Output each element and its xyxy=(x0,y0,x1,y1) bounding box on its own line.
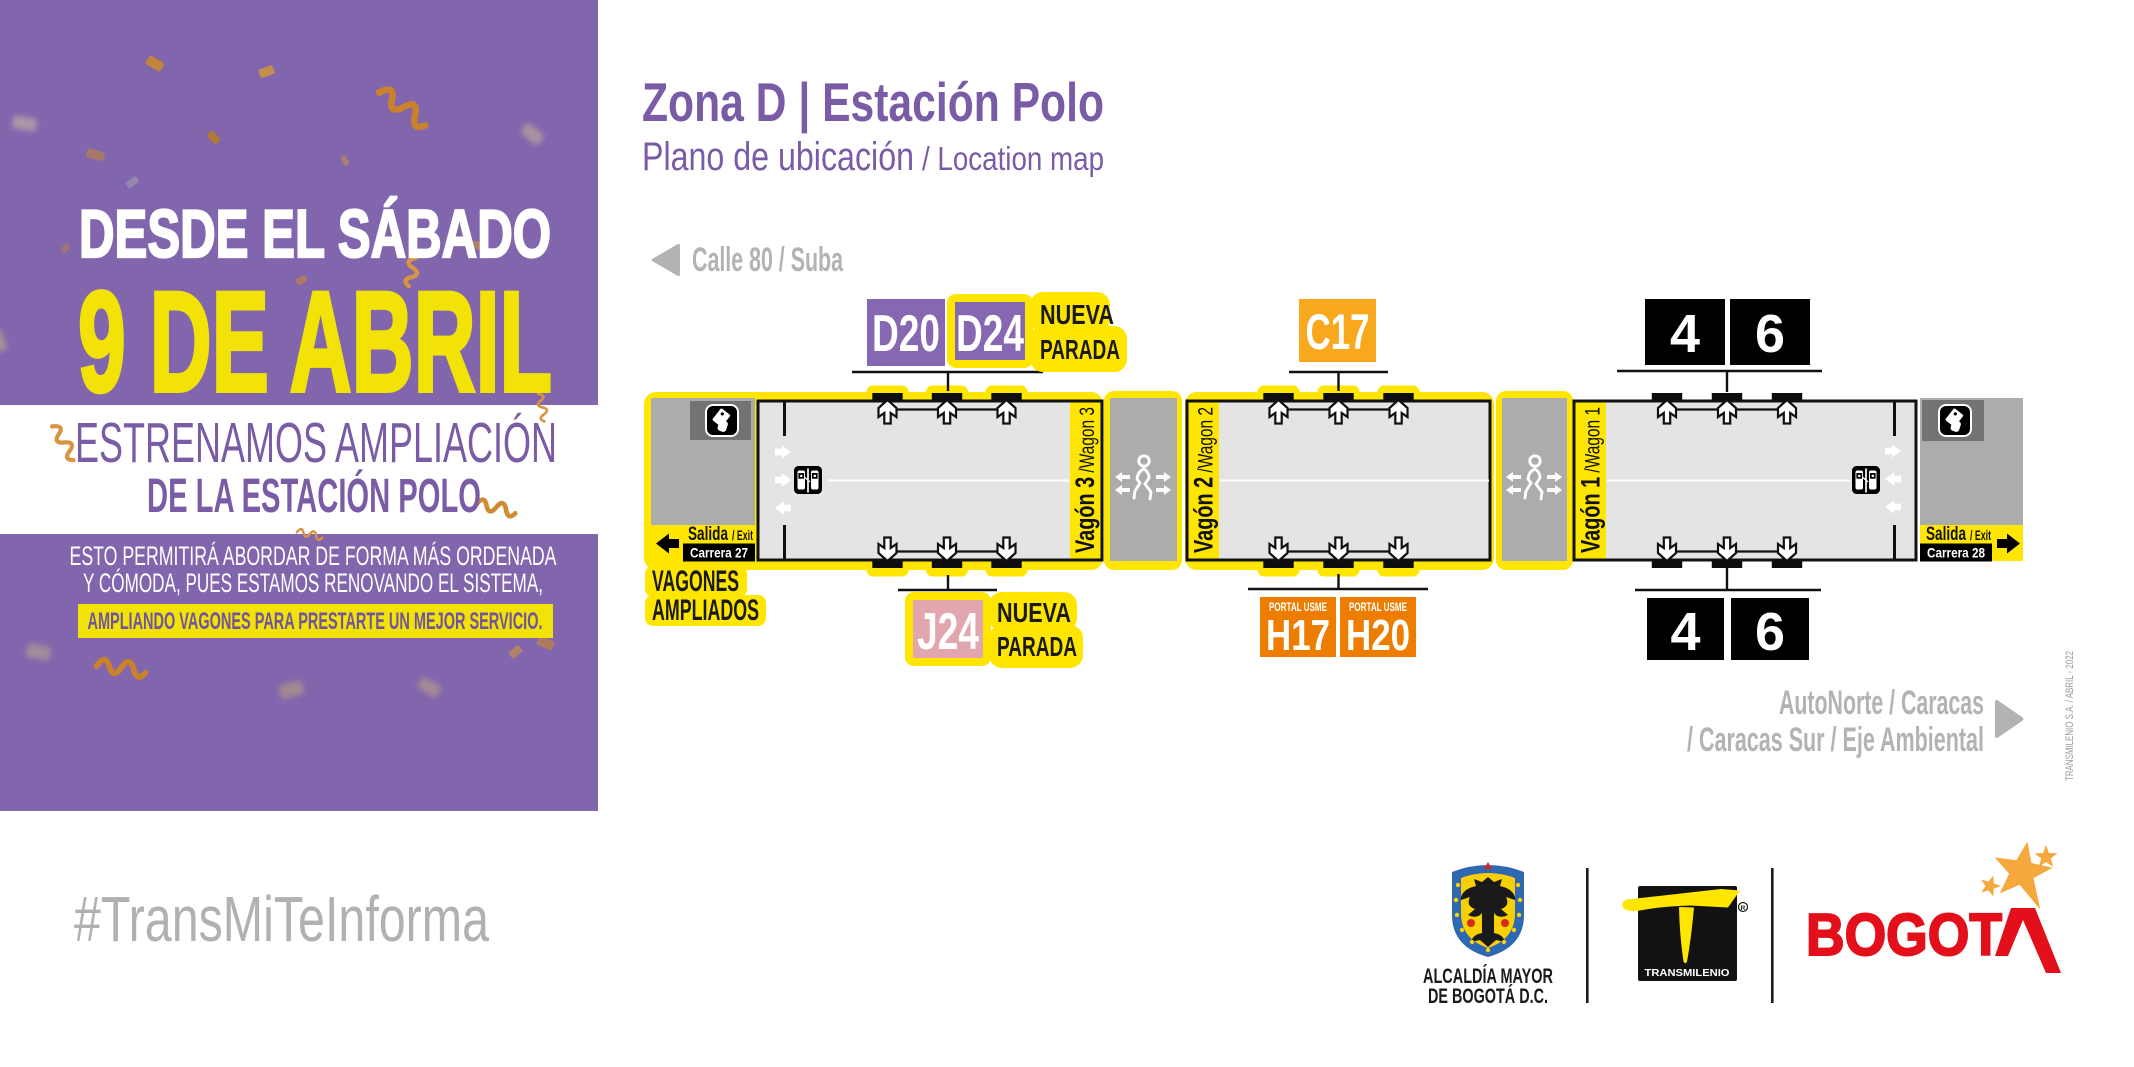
svg-text:D20: D20 xyxy=(872,305,940,363)
svg-text:Salida: Salida xyxy=(688,524,728,545)
svg-text:/ Exit: / Exit xyxy=(732,528,753,543)
svg-text:DE LA ESTACIÓN POLO: DE LA ESTACIÓN POLO xyxy=(147,468,481,523)
svg-text:ESTRENAMOS AMPLIACIÓN: ESTRENAMOS AMPLIACIÓN xyxy=(75,411,557,475)
svg-text:H20: H20 xyxy=(1346,611,1410,660)
svg-text:PARADA: PARADA xyxy=(997,631,1077,662)
svg-text:Calle 80 / Suba: Calle 80 / Suba xyxy=(692,241,844,279)
svg-text:AMPLIANDO VAGONES PARA PRESTAR: AMPLIANDO VAGONES PARA PRESTARTE UN MEJO… xyxy=(88,608,543,635)
svg-text:Zona D | Estación Polo: Zona D | Estación Polo xyxy=(642,71,1104,134)
svg-text:/ Exit: / Exit xyxy=(1970,528,1991,543)
svg-text:DE BOGOTÁ D.C.: DE BOGOTÁ D.C. xyxy=(1428,985,1548,1008)
svg-text:Plano de ubicación: Plano de ubicación xyxy=(642,135,914,179)
svg-text:D24: D24 xyxy=(956,305,1024,363)
svg-text:TRANSMILENIO: TRANSMILENIO xyxy=(1645,967,1730,979)
svg-text:Carrera 28: Carrera 28 xyxy=(1927,545,1985,561)
svg-text:9 DE ABRIL: 9 DE ABRIL xyxy=(78,263,552,422)
svg-text:NUEVA: NUEVA xyxy=(1040,299,1114,330)
svg-text:AMPLIADOS: AMPLIADOS xyxy=(652,594,759,627)
svg-text:NUEVA: NUEVA xyxy=(997,597,1071,628)
svg-text:DESDE EL SÁBADO: DESDE EL SÁBADO xyxy=(79,196,551,272)
svg-text:Salida: Salida xyxy=(1926,524,1966,545)
svg-text:BOGOT: BOGOT xyxy=(1806,902,2002,968)
svg-text:R: R xyxy=(1741,905,1746,912)
svg-text:4: 4 xyxy=(1670,304,1700,364)
svg-text:/ Location map: / Location map xyxy=(922,140,1104,177)
svg-text:6: 6 xyxy=(1755,304,1785,364)
svg-text:#TransMiTeInforma: #TransMiTeInforma xyxy=(74,883,489,955)
svg-text:AutoNorte / Caracas: AutoNorte / Caracas xyxy=(1779,684,1984,722)
svg-text:H17: H17 xyxy=(1266,611,1330,660)
svg-text:6: 6 xyxy=(1755,602,1785,662)
svg-text:ESTO PERMITIRÁ ABORDAR DE FORM: ESTO PERMITIRÁ ABORDAR DE FORMA MÁS ORDE… xyxy=(70,541,557,571)
svg-text:J24: J24 xyxy=(917,603,979,661)
svg-text:4: 4 xyxy=(1671,602,1701,662)
svg-text:Carrera 27: Carrera 27 xyxy=(690,545,748,561)
svg-text:PARADA: PARADA xyxy=(1040,334,1120,365)
svg-text:Y CÓMODA, PUES ESTAMOS RENOVAN: Y CÓMODA, PUES ESTAMOS RENOVANDO EL SIST… xyxy=(83,567,543,598)
svg-text:TRANSMILENIO S.A. / ABRIL - 20: TRANSMILENIO S.A. / ABRIL - 2022 xyxy=(2064,651,2076,781)
svg-text:C17: C17 xyxy=(1306,304,1370,360)
svg-text:/ Caracas Sur / Eje Ambiental: / Caracas Sur / Eje Ambiental xyxy=(1687,721,1984,759)
